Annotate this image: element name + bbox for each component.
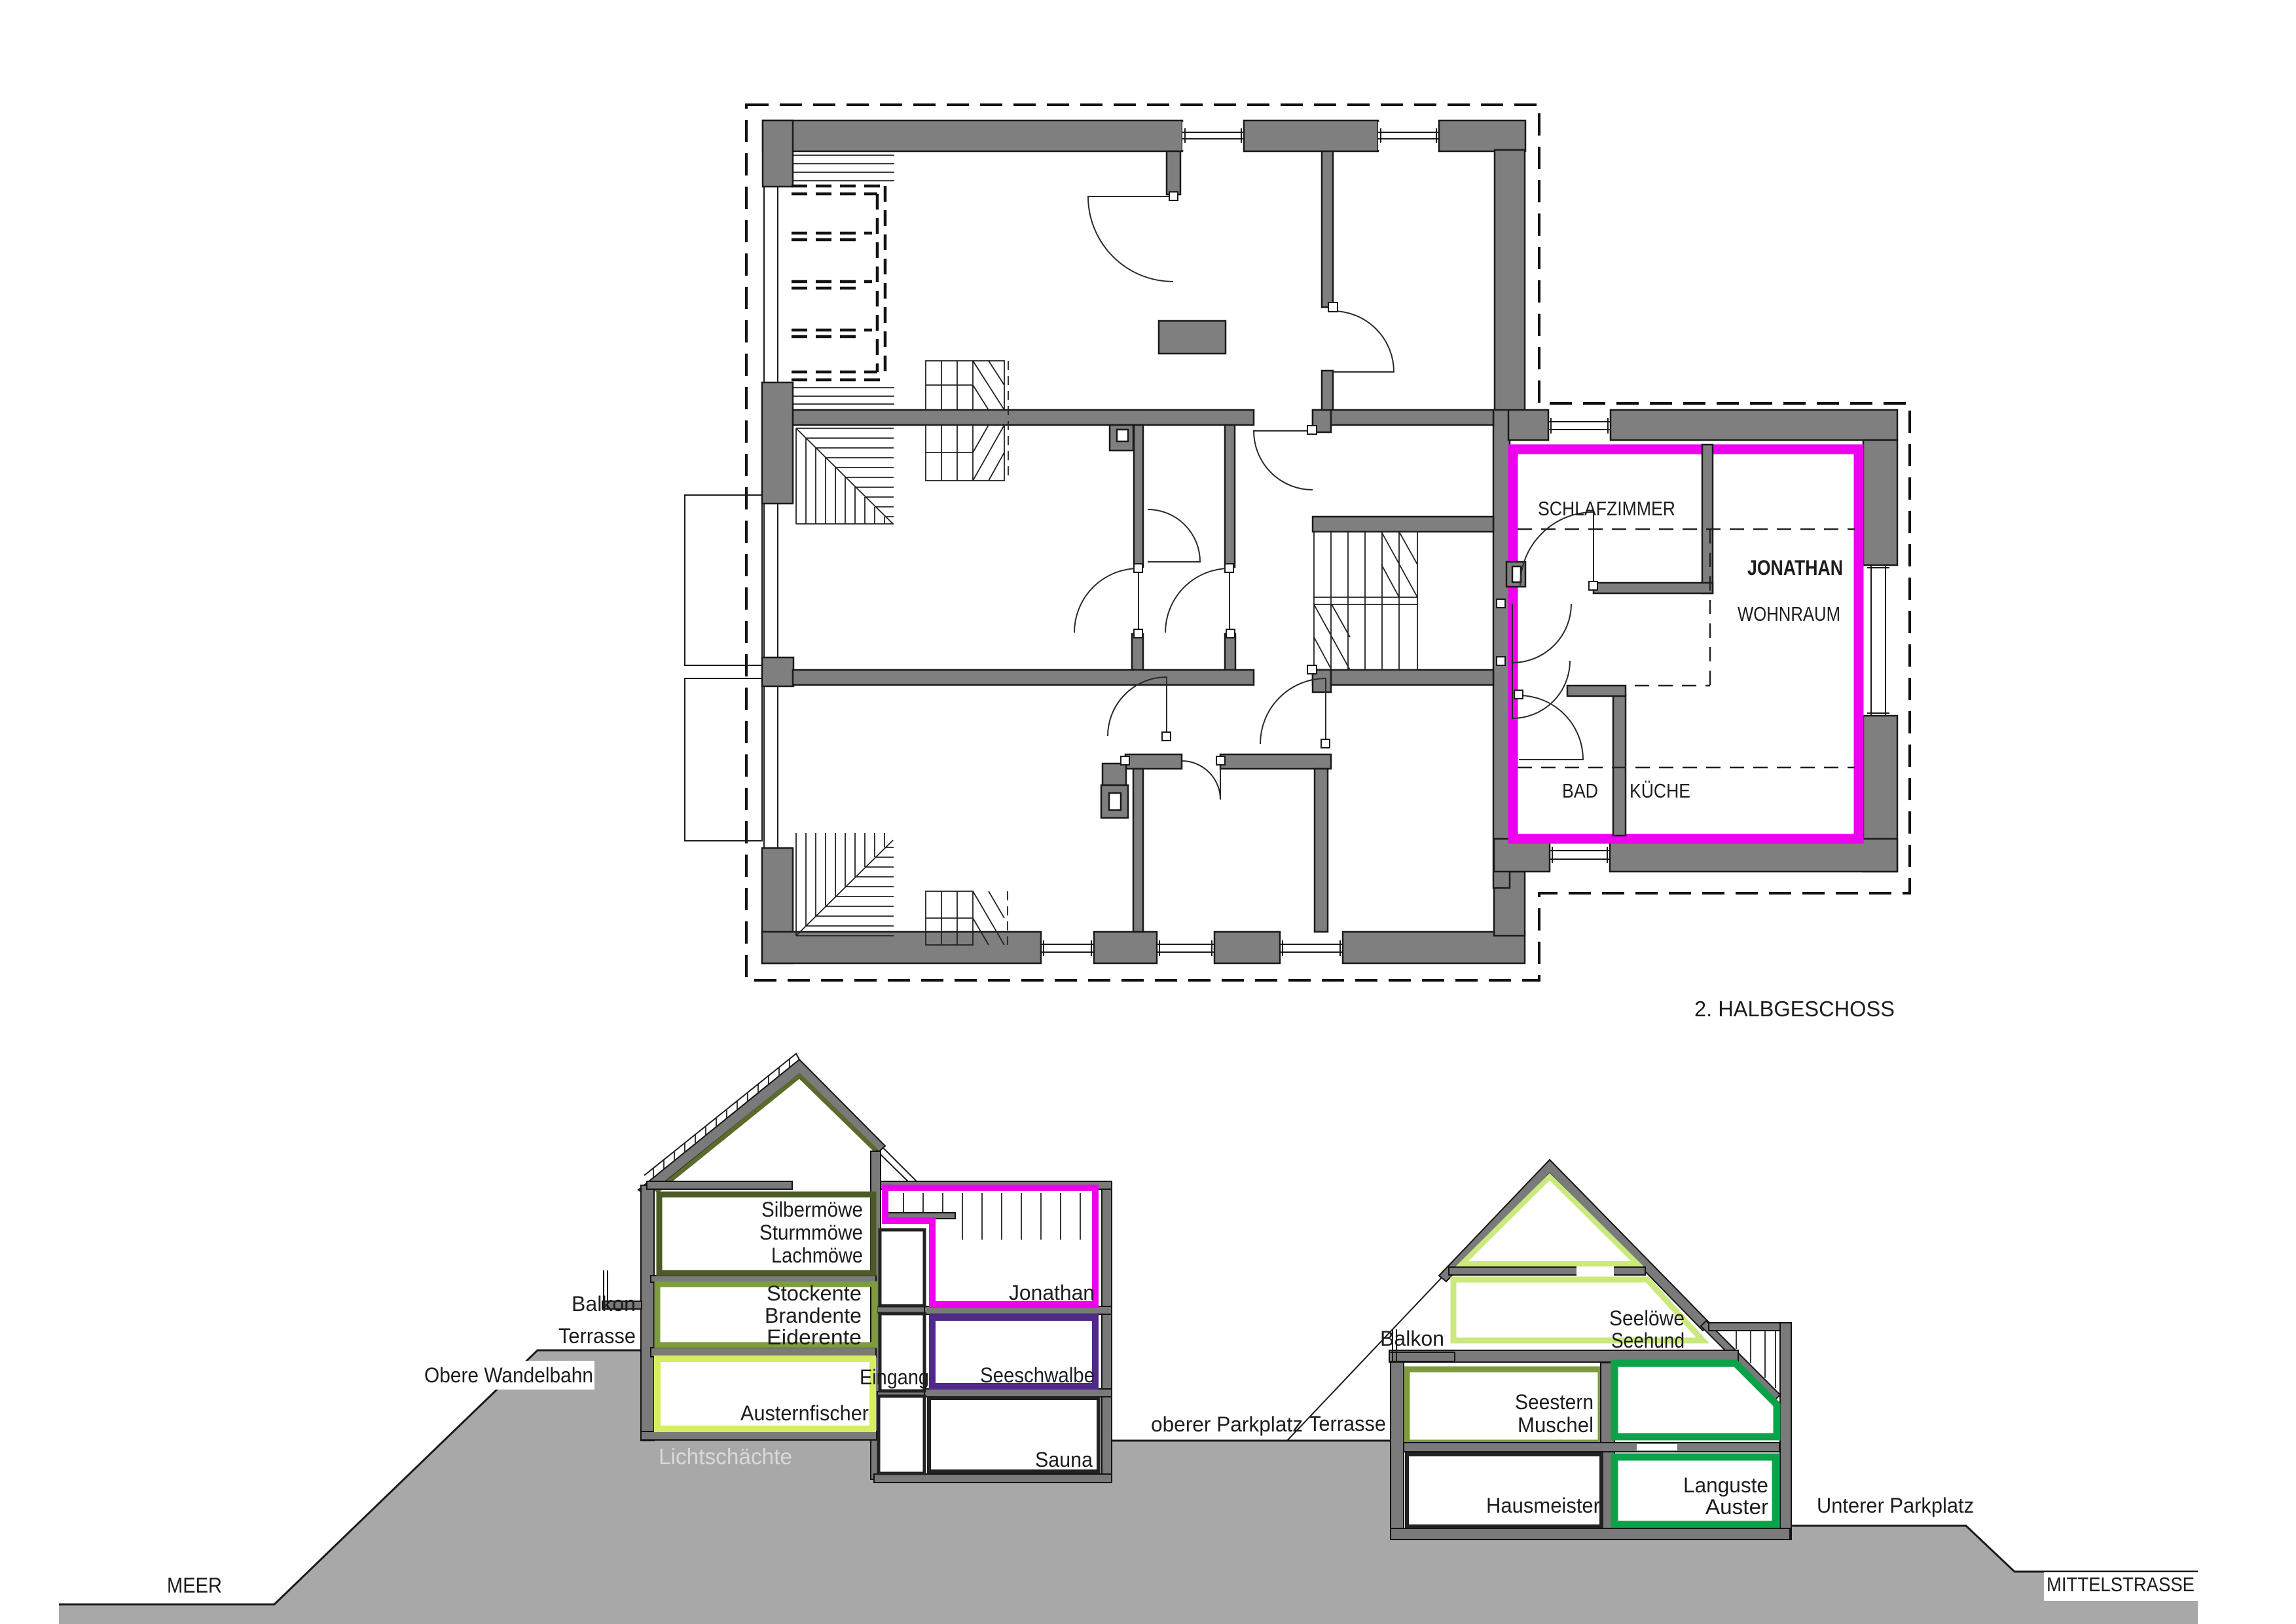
svg-text:Eiderente: Eiderente: [767, 1325, 862, 1349]
svg-text:Seestern: Seestern: [1515, 1390, 1594, 1414]
svg-text:Auster: Auster: [1705, 1495, 1768, 1519]
svg-text:oberer Parkplatz: oberer Parkplatz: [1151, 1412, 1303, 1436]
svg-text:SCHLAFZIMMER: SCHLAFZIMMER: [1538, 497, 1675, 520]
svg-text:Lichtschächte: Lichtschächte: [659, 1445, 792, 1469]
svg-text:Hausmeister: Hausmeister: [1486, 1494, 1600, 1517]
svg-text:MITTELSTRASSE: MITTELSTRASSE: [2047, 1573, 2195, 1596]
svg-text:Terrasse: Terrasse: [1309, 1412, 1386, 1435]
svg-text:Austernfischer: Austernfischer: [740, 1401, 869, 1425]
svg-text:Unterer Parkplatz: Unterer Parkplatz: [1817, 1494, 1974, 1517]
svg-text:Sauna: Sauna: [1035, 1448, 1093, 1471]
svg-text:Terrasse: Terrasse: [558, 1324, 636, 1348]
svg-text:MEER: MEER: [167, 1574, 222, 1597]
svg-text:Seelöwe: Seelöwe: [1609, 1306, 1685, 1330]
svg-text:Languste: Languste: [1683, 1473, 1768, 1497]
svg-text:Seeschwalbe: Seeschwalbe: [980, 1363, 1095, 1387]
svg-text:Eingang: Eingang: [860, 1365, 929, 1389]
svg-text:KÜCHE: KÜCHE: [1630, 779, 1690, 802]
svg-text:Obere Wandelbahn: Obere Wandelbahn: [424, 1363, 593, 1387]
svg-text:Balkon: Balkon: [1380, 1327, 1444, 1350]
svg-text:Sturmmöwe: Sturmmöwe: [759, 1221, 863, 1244]
svg-text:Lachmöwe: Lachmöwe: [771, 1244, 863, 1267]
svg-text:Brandente: Brandente: [765, 1304, 862, 1327]
svg-text:JONATHAN: JONATHAN: [1747, 556, 1843, 580]
svg-text:Balkon: Balkon: [572, 1292, 636, 1316]
svg-text:Stockente: Stockente: [767, 1282, 862, 1305]
svg-text:2. HALBGESCHOSS: 2. HALBGESCHOSS: [1694, 997, 1895, 1021]
svg-text:Silbermöwe: Silbermöwe: [761, 1198, 863, 1221]
svg-text:BAD: BAD: [1562, 779, 1598, 802]
svg-text:Jonathan: Jonathan: [1009, 1281, 1095, 1304]
svg-text:Seehund: Seehund: [1611, 1329, 1685, 1352]
svg-text:Muschel: Muschel: [1518, 1413, 1594, 1437]
svg-text:WOHNRAUM: WOHNRAUM: [1738, 602, 1840, 625]
